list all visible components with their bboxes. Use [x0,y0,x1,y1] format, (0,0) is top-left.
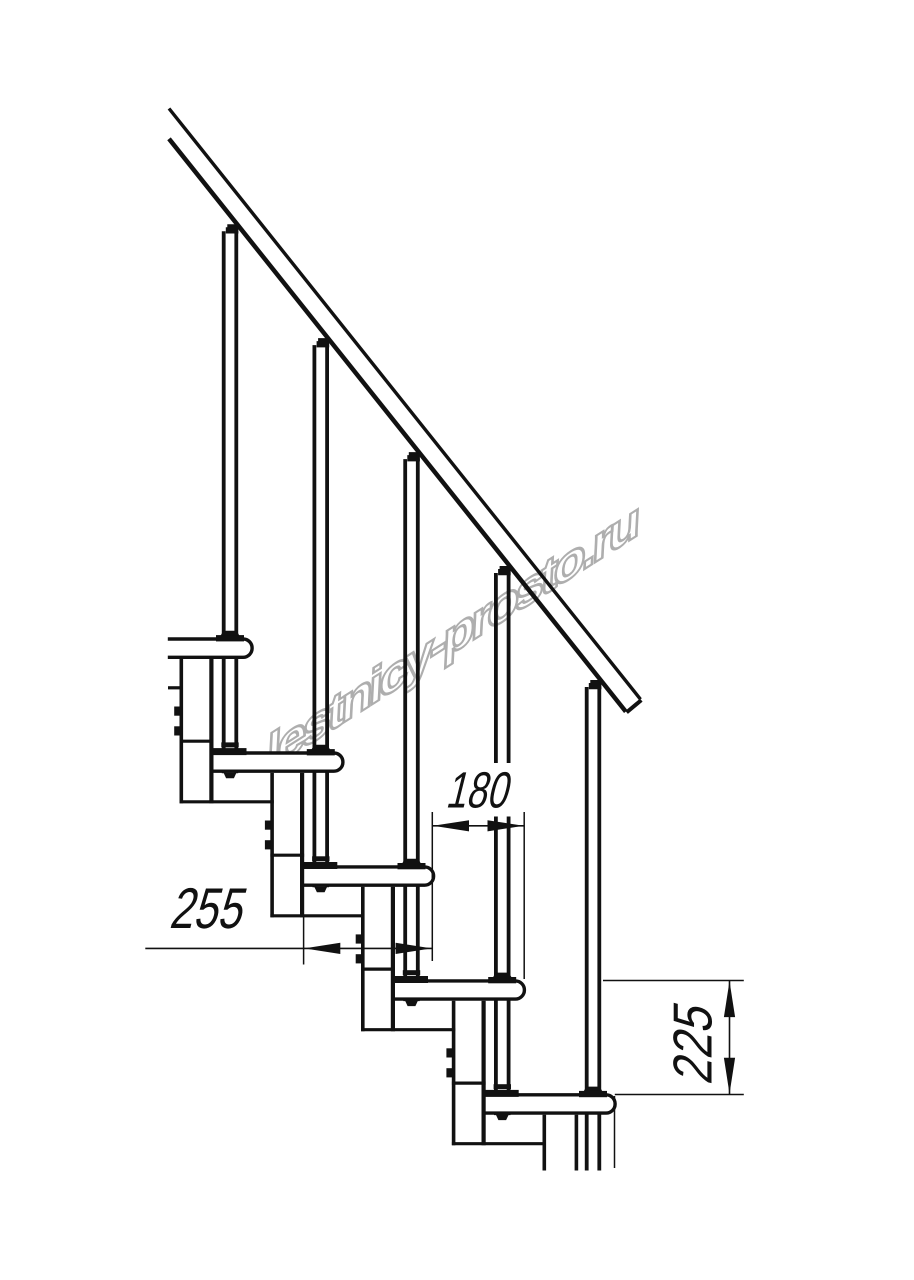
svg-text:225: 225 [662,996,724,1088]
